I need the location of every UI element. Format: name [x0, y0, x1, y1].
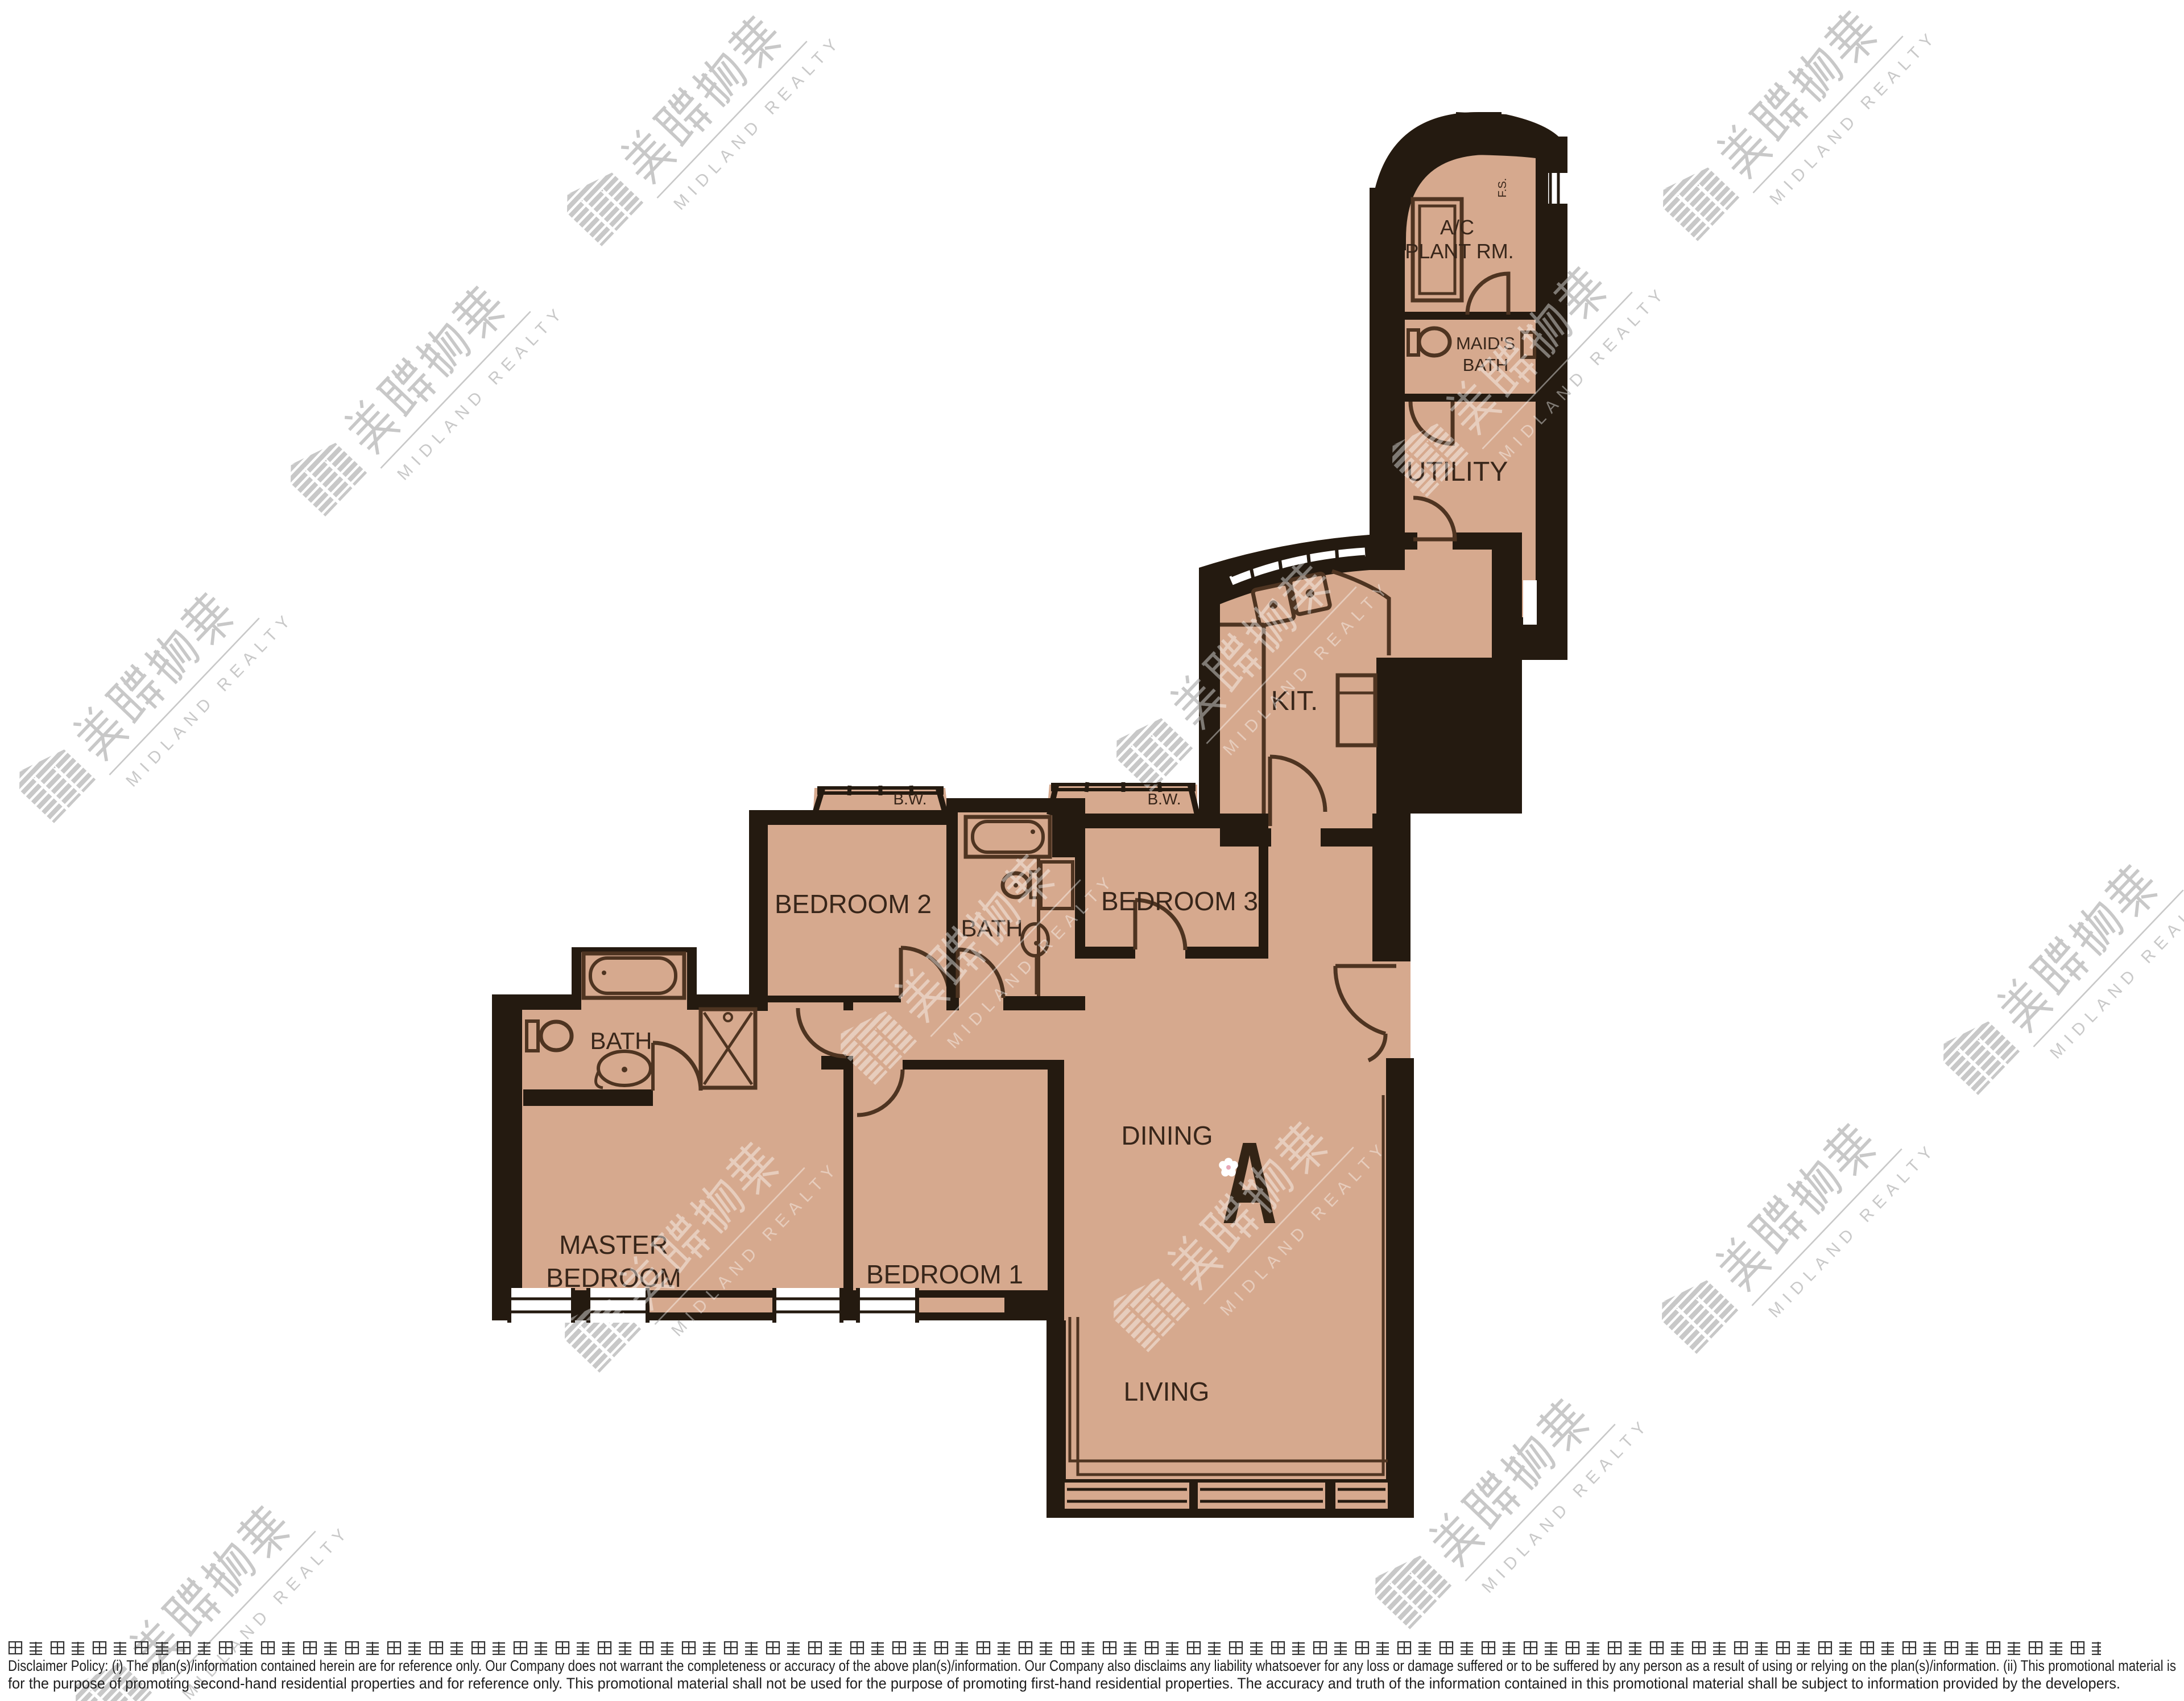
svg-text:Disclaimer Policy: (i) The pla: Disclaimer Policy: (i) The plan(s)/infor… [8, 1657, 2176, 1674]
svg-text:BEDROOM 3: BEDROOM 3 [1101, 886, 1258, 916]
svg-text:B.W.: B.W. [893, 790, 926, 808]
svg-text:PLANT RM.: PLANT RM. [1405, 240, 1513, 263]
svg-text:DINING: DINING [1122, 1121, 1213, 1150]
svg-text:F.S.: F.S. [1496, 178, 1509, 197]
svg-text:for the purpose of promoting s: for the purpose of promoting second-hand… [8, 1675, 2120, 1692]
svg-text:LIVING: LIVING [1124, 1377, 1210, 1406]
svg-text:A/C: A/C [1440, 216, 1474, 239]
svg-text:BEDROOM 2: BEDROOM 2 [775, 889, 932, 919]
svg-text:BEDROOM 1: BEDROOM 1 [866, 1260, 1023, 1289]
svg-text:B.W.: B.W. [1147, 790, 1181, 808]
